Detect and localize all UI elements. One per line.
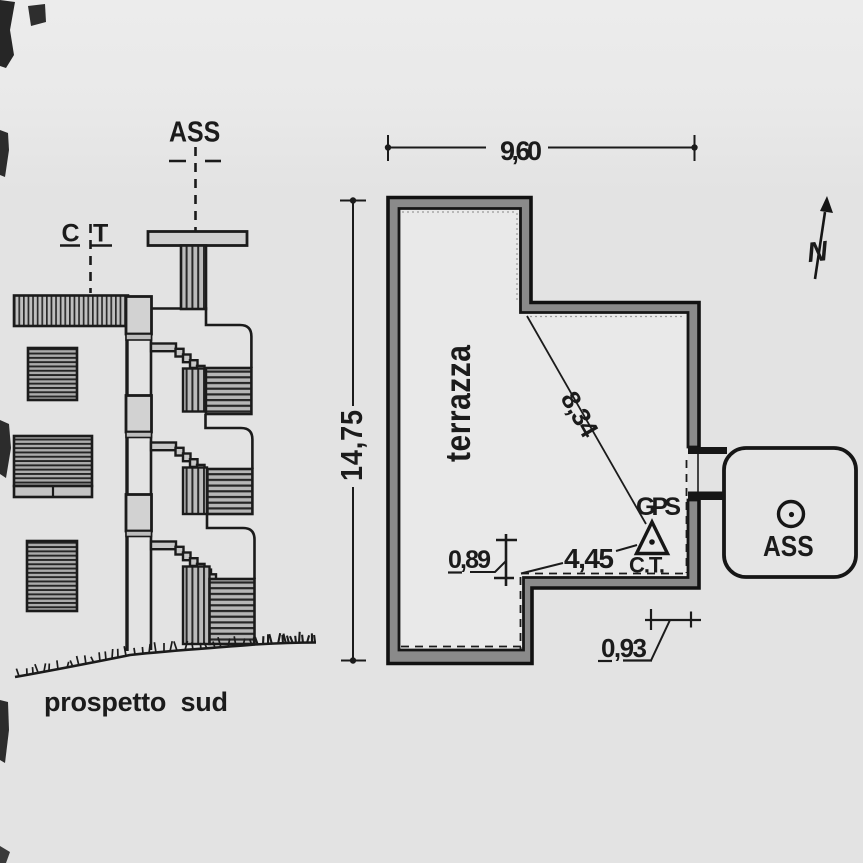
- svg-text:T: T: [93, 220, 108, 248]
- svg-text:4,45: 4,45: [564, 543, 614, 574]
- svg-text:ASS: ASS: [169, 116, 220, 148]
- svg-text:N: N: [806, 235, 830, 268]
- svg-text:14,75: 14,75: [336, 410, 370, 481]
- svg-text:9,60: 9,60: [500, 136, 542, 166]
- svg-text:prospetto sud: prospetto sud: [44, 687, 228, 717]
- svg-text:0,89: 0,89: [448, 546, 491, 574]
- svg-text:C: C: [62, 220, 80, 248]
- svg-text:ASS: ASS: [763, 530, 814, 562]
- svg-text:C.T.: C.T.: [629, 553, 665, 578]
- svg-text:terrazza: terrazza: [438, 344, 478, 462]
- svg-text:0,93: 0,93: [601, 633, 647, 663]
- svg-text:GPS: GPS: [636, 493, 681, 521]
